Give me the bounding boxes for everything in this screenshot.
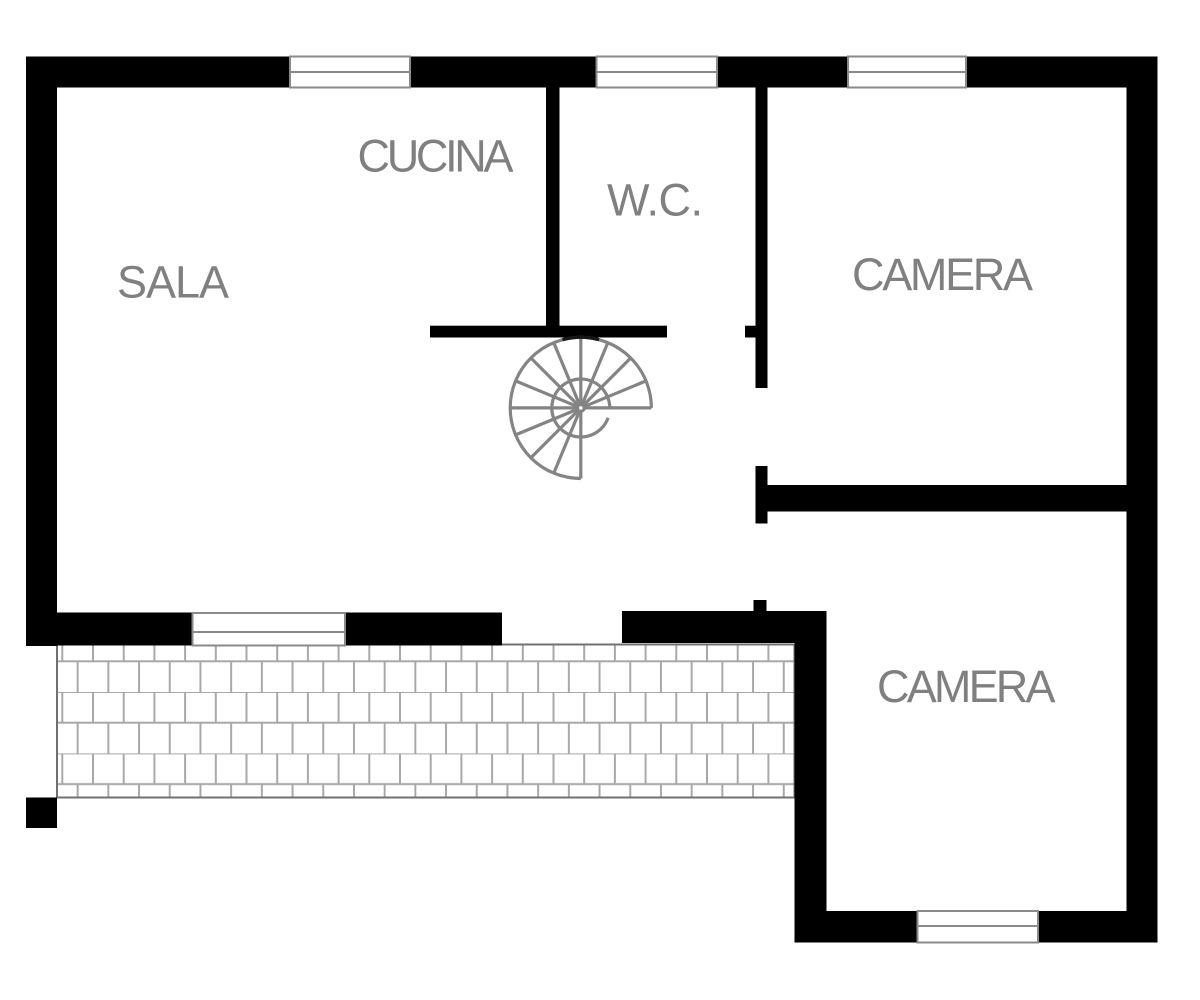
svg-text:CAMERA: CAMERA [877, 661, 1056, 712]
svg-text:W.C.: W.C. [607, 175, 703, 226]
svg-text:CAMERA: CAMERA [852, 249, 1033, 300]
svg-text:CUCINA: CUCINA [358, 131, 514, 182]
svg-text:SALA: SALA [117, 257, 229, 308]
